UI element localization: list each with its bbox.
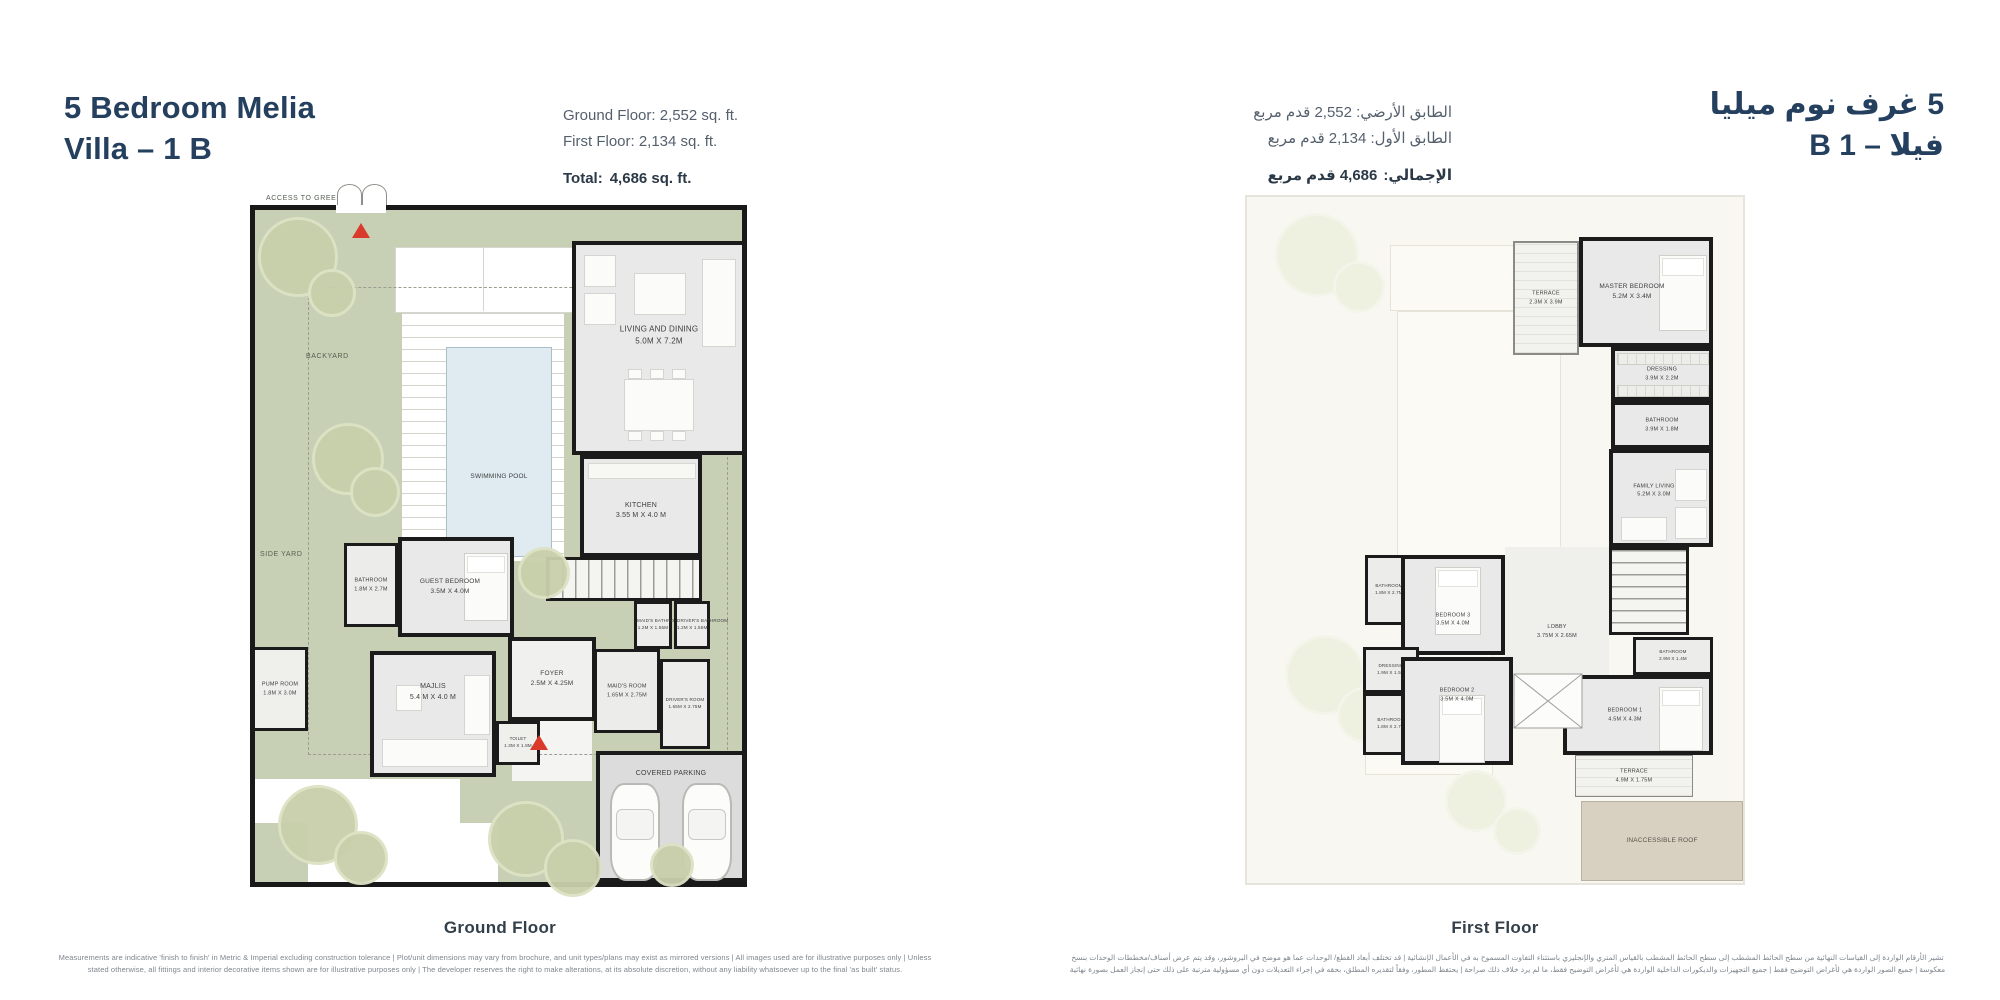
room-label: FAMILY LIVING 5.2M X 3.0M bbox=[1599, 482, 1709, 499]
armchair bbox=[1675, 507, 1707, 539]
room-living-dining: LIVING AND DINING 5.0M X 7.2M bbox=[572, 241, 746, 455]
room-master-bathroom: BATHROOM 3.9M X 1.8M bbox=[1611, 401, 1713, 449]
room-guest-bedroom: GUEST BEDROOM 3.5M X 4.0M bbox=[398, 537, 514, 637]
chair bbox=[650, 431, 664, 441]
ghost-tree bbox=[1333, 261, 1385, 313]
inaccessible-roof: INACCESSIBLE ROOF bbox=[1581, 801, 1743, 881]
entrance-arrow-icon bbox=[352, 223, 370, 238]
room-master-bedroom: MASTER BEDROOM 5.2M X 3.4M bbox=[1579, 237, 1713, 347]
chair bbox=[672, 431, 686, 441]
room-label: MAID'S BATHROOM 1.2M X 1.55M bbox=[637, 618, 669, 632]
room-maids-room: MAID'S ROOM 1.65M X 2.75M bbox=[594, 649, 660, 733]
room-label: DRIVER'S ROOM 1.65M X 2.75M bbox=[663, 697, 707, 711]
first-floor-plan: TERRACE 2.3M X 3.9M MASTER BEDROOM 5.2M … bbox=[1245, 195, 1765, 900]
room-bedroom-3: BEDROOM 3 3.5M X 4.0M bbox=[1401, 555, 1505, 655]
room-pump-room: PUMP ROOM 1.8M X 3.0M bbox=[252, 647, 308, 731]
room-label-lobby: LOBBY 3.75M X 2.65M bbox=[1505, 623, 1609, 640]
room-label: MASTER BEDROOM 5.2M X 3.4M bbox=[1555, 282, 1709, 302]
wardrobe bbox=[1617, 353, 1709, 365]
room-bedroom-2: BEDROOM 2 3.5M X 4.0M bbox=[1401, 657, 1513, 765]
room-master-dressing: DRESSING 3.9M X 2.2M bbox=[1611, 347, 1713, 401]
chair bbox=[628, 431, 642, 441]
title-en-line1: 5 Bedroom Melia bbox=[64, 90, 315, 125]
room-label: PUMP ROOM 1.8M X 3.0M bbox=[255, 680, 305, 697]
disclaimer-en: Measurements are indicative 'finish to f… bbox=[50, 952, 940, 977]
area-stats-ar: الطابق الأرضي: 2,552 قدم مربع الطابق الأ… bbox=[1253, 100, 1452, 188]
sofa bbox=[382, 739, 488, 767]
area-ar-ground: الطابق الأرضي: 2,552 قدم مربع bbox=[1253, 100, 1452, 126]
dining-table bbox=[624, 379, 694, 431]
room-label: MAJLIS 5.4 M X 4.0 M bbox=[374, 682, 492, 704]
area-en-total: Total:4,686 sq. ft. bbox=[563, 166, 738, 192]
disclaimer-ar: تشير الأرقام الواردة إلى القياسات النهائ… bbox=[1060, 952, 1955, 977]
room-foyer: FOYER 2.5M X 4.25M bbox=[508, 637, 596, 721]
title-ar-line1: 5 غرف نوم ميليا bbox=[1710, 88, 1944, 121]
side-yard-label: SIDE YARD bbox=[260, 551, 303, 558]
room-label: BEDROOM 2 3.5M X 4.0M bbox=[1405, 686, 1509, 703]
room-maids-bathroom: MAID'S BATHROOM 1.2M X 1.55M bbox=[634, 601, 672, 649]
ghost-tree bbox=[1493, 807, 1541, 855]
courtyard-tree bbox=[518, 547, 570, 599]
room-label: BEDROOM 3 3.5M X 4.0M bbox=[1405, 611, 1501, 628]
room-guest-bathroom: BATHROOM 1.8M X 2.7M bbox=[344, 543, 398, 627]
bed bbox=[1439, 695, 1485, 763]
area-en-ground: Ground Floor: 2,552 sq. ft. bbox=[563, 103, 738, 129]
first-floor-caption: First Floor bbox=[1345, 918, 1645, 938]
room-label: BATHROOM 3.9M X 1.8M bbox=[1615, 416, 1709, 433]
area-ar-total: الإجمالي:4,686 قدم مربع bbox=[1253, 163, 1452, 189]
backyard-label: BACKYARD bbox=[306, 353, 349, 360]
room-label: MAID'S ROOM 1.65M X 2.75M bbox=[597, 682, 657, 699]
ground-floor-caption: Ground Floor bbox=[350, 918, 650, 938]
room-kitchen: KITCHEN 3.55 M X 4.0 M bbox=[580, 455, 702, 557]
brochure-page: 5 Bedroom Melia Villa – 1 B Ground Floor… bbox=[0, 0, 2000, 1000]
room-bathroom-1: BATHROOM 2.9M X 1.4M bbox=[1633, 637, 1713, 675]
access-to-green-label: ACCESS TO GREEN bbox=[266, 195, 342, 202]
sofa bbox=[1621, 517, 1667, 541]
tree bbox=[308, 269, 356, 317]
tree bbox=[650, 843, 694, 887]
wardrobe bbox=[1617, 385, 1709, 397]
page-title-ar: 5 غرف نوم ميليا فيلا – B 1 bbox=[1710, 84, 1944, 167]
page-title-en: 5 Bedroom Melia Villa – 1 B bbox=[64, 88, 315, 170]
area-en-first: First Floor: 2,134 sq. ft. bbox=[563, 129, 738, 155]
covered-parking-label: COVERED PARKING bbox=[600, 769, 742, 780]
room-drivers-bathroom: DRIVER'S BATHROOM 1.2M X 1.55M bbox=[674, 601, 710, 649]
access-door-leaf-icon bbox=[362, 184, 387, 205]
room-family-living: FAMILY LIVING 5.2M X 3.0M bbox=[1609, 449, 1713, 547]
room-label: DRIVER'S BATHROOM 1.2M X 1.55M bbox=[677, 618, 707, 632]
tree bbox=[544, 839, 602, 897]
room-bedroom-1: BEDROOM 1 4.5M X 4.3M bbox=[1563, 675, 1713, 755]
ground-floor-plan: ACCESS TO GREEN BACKYARD SIDE YARD SWIMM… bbox=[250, 195, 750, 900]
room-majlis: MAJLIS 5.4 M X 4.0 M bbox=[370, 651, 496, 777]
chair bbox=[628, 369, 642, 379]
staircase bbox=[1609, 547, 1689, 635]
room-label: FOYER 2.5M X 4.25M bbox=[512, 669, 592, 689]
access-door-leaf-icon bbox=[337, 184, 362, 205]
kitchen-counter bbox=[588, 463, 696, 479]
room-label: BATHROOM 2.9M X 1.4M bbox=[1636, 649, 1710, 663]
coffee-table bbox=[634, 273, 686, 315]
armchair bbox=[584, 255, 616, 287]
chair bbox=[672, 369, 686, 379]
room-label: TERRACE 4.9M X 1.75M bbox=[1576, 767, 1692, 784]
room-terrace-bottom: TERRACE 4.9M X 1.75M bbox=[1575, 755, 1693, 797]
room-label: BATHROOM 1.8M X 2.7M bbox=[347, 576, 395, 593]
staircase bbox=[546, 557, 702, 601]
area-stats-en: Ground Floor: 2,552 sq. ft. First Floor:… bbox=[563, 103, 738, 191]
area-ar-first: الطابق الأول: 2,134 قدم مربع bbox=[1253, 126, 1452, 152]
room-drivers-room: DRIVER'S ROOM 1.65M X 2.75M bbox=[660, 659, 710, 749]
room-label: GUEST BEDROOM 3.5M X 4.0M bbox=[390, 577, 510, 597]
void-x-icon bbox=[1513, 673, 1583, 729]
chair bbox=[650, 369, 664, 379]
room-label: KITCHEN 3.55 M X 4.0 M bbox=[584, 501, 698, 523]
tree bbox=[350, 467, 400, 517]
room-label: DRESSING 3.9M X 2.2M bbox=[1615, 365, 1709, 382]
inaccessible-roof-label: INACCESSIBLE ROOF bbox=[1582, 836, 1742, 846]
room-label: LIVING AND DINING 5.0M X 7.2M bbox=[576, 323, 742, 348]
title-ar-line2: فيلا – B 1 bbox=[1809, 129, 1944, 162]
title-en-line2: Villa – 1 B bbox=[64, 131, 212, 166]
tree bbox=[334, 831, 388, 885]
armchair bbox=[584, 293, 616, 325]
entrance-arrow-icon bbox=[530, 735, 548, 750]
